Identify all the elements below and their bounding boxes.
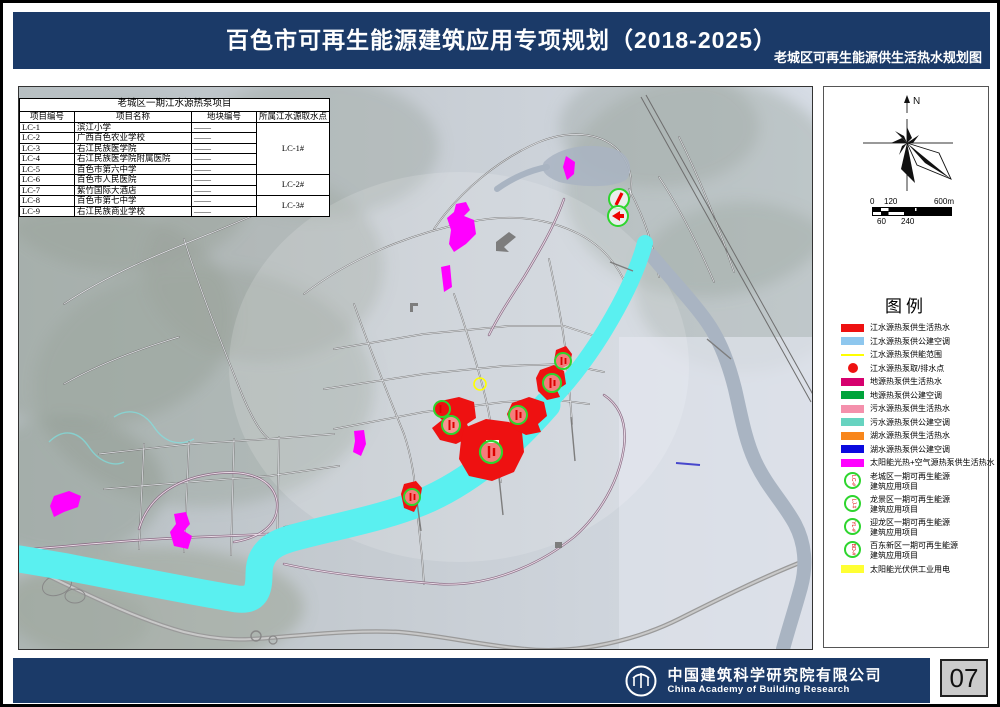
legend-item: 污水源热泵供公建空调 — [841, 416, 986, 430]
legend-swatch — [841, 432, 864, 440]
col-intake-point: 所属江水源取水点 — [257, 112, 330, 123]
scale-label: 60 — [877, 217, 886, 226]
map-area: 老城区一期江水源热泵项目 项目编号 项目名称 地块编号 所属江水源取水点 LC-… — [18, 86, 813, 650]
legend-item-label: 老城区一期可再生能源建筑应用项目 — [870, 471, 950, 493]
legend-item: LC-#老城区一期可再生能源建筑应用项目 — [841, 471, 986, 493]
legend-swatch — [841, 418, 864, 426]
legend-swatch — [841, 337, 864, 345]
cell-project-name: 右江民族医学院附属医院 — [75, 154, 192, 165]
scale-label: 240 — [901, 217, 914, 226]
project-marker-icon: LC-# — [844, 472, 861, 489]
legend-item: 江水源热泵供能范围 — [841, 348, 986, 362]
legend-item: 江水源热泵供生活热水 — [841, 321, 986, 335]
legend-item: 湖水源热泵供生活热水 — [841, 429, 986, 443]
legend-item: 江水源热泵供公建空调 — [841, 335, 986, 349]
cell-project-name: 百色市第七中学 — [75, 196, 192, 207]
cell-project-code: LC-4 — [20, 154, 75, 165]
legend-swatch — [841, 565, 864, 573]
table-title: 老城区一期江水源热泵项目 — [20, 99, 330, 112]
cell-plot-code: —— — [192, 133, 257, 144]
cell-project-code: LC-2 — [20, 133, 75, 144]
table-row: LC-8百色市第七中学——LC-3# — [20, 196, 330, 207]
cell-project-code: LC-6 — [20, 175, 75, 186]
cell-project-code: LC-3 — [20, 143, 75, 154]
legend-swatch — [841, 459, 864, 467]
company-name-cn: 中国建筑科学研究院有限公司 — [667, 667, 882, 684]
table-row: LC-6百色市人民医院——LC-2# — [20, 175, 330, 186]
legend-item-label: 地源热泵供公建空调 — [870, 390, 942, 401]
compass-rose: N — [847, 91, 967, 196]
project-marker-icon: LJ-# — [844, 495, 861, 512]
cell-project-code: LC-1 — [20, 122, 75, 133]
cell-project-name: 右江民族商业学校 — [75, 206, 192, 217]
legend-swatch — [841, 445, 864, 453]
cell-plot-code: —— — [192, 154, 257, 165]
cell-project-code: LC-7 — [20, 185, 75, 196]
legend-item: 太阳能光热+空气源热泵供生活热水 — [841, 456, 986, 470]
scale-bar: 0 120 600m 60 240 — [870, 197, 954, 231]
legend-item: 地源热泵供生活热水 — [841, 375, 986, 389]
cell-plot-code: —— — [192, 122, 257, 133]
cell-project-name: 紫竹国际大酒店 — [75, 185, 192, 196]
cell-intake-point: LC-1# — [257, 122, 330, 175]
legend-item-label: 湖水源热泵供生活热水 — [870, 430, 950, 441]
discharge-point-marker — [608, 206, 628, 226]
cell-project-name: 滨江小学 — [75, 122, 192, 133]
compass-star — [891, 127, 951, 183]
cell-project-name: 右江民族医学院 — [75, 143, 192, 154]
legend-item-label: 太阳能光热+空气源热泵供生活热水 — [870, 457, 995, 468]
cell-plot-code: —— — [192, 185, 257, 196]
legend: 江水源热泵供生活热水江水源热泵供公建空调江水源热泵供能范围江水源热泵取/排水点地… — [841, 321, 986, 576]
project-table: 老城区一期江水源热泵项目 项目编号 项目名称 地块编号 所属江水源取水点 LC-… — [19, 98, 330, 217]
page-number: 07 — [940, 659, 988, 697]
project-marker — [442, 416, 460, 434]
project-marker — [509, 406, 527, 424]
col-project-code: 项目编号 — [20, 112, 75, 123]
legend-item-label: 太阳能光伏供工业用电 — [870, 564, 950, 575]
map-margin-panel: N 0 120 600m 60 240 图例 江水源热泵供生活热水江水源热泵供公… — [823, 86, 989, 648]
col-project-name: 项目名称 — [75, 112, 192, 123]
legend-item-label: 百东新区一期可再生能源建筑应用项目 — [870, 540, 958, 562]
header-bar: 百色市可再生能源建筑应用专项规划（2018-2025） 老城区可再生能源供生活热… — [13, 12, 990, 69]
cell-project-code: LC-8 — [20, 196, 75, 207]
footer-bar: 中国建筑科学研究院有限公司 China Academy of Building … — [13, 658, 930, 703]
legend-item-label: 迎龙区一期可再生能源建筑应用项目 — [870, 517, 950, 539]
cell-project-name: 百色市第六中学 — [75, 164, 192, 175]
legend-item: 湖水源热泵供公建空调 — [841, 443, 986, 457]
legend-swatch — [841, 324, 864, 332]
legend-item-label: 龙景区一期可再生能源建筑应用项目 — [870, 494, 950, 516]
north-label: N — [913, 96, 920, 107]
cell-plot-code: —— — [192, 164, 257, 175]
table-header-row: 项目编号 项目名称 地块编号 所属江水源取水点 — [20, 112, 330, 123]
col-plot-code: 地块编号 — [192, 112, 257, 123]
legend-item: 污水源热泵供生活热水 — [841, 402, 986, 416]
legend-item-label: 江水源热泵供公建空调 — [870, 336, 950, 347]
cell-plot-code: —— — [192, 206, 257, 217]
legend-swatch — [841, 405, 864, 413]
cell-project-name: 百色市人民医院 — [75, 175, 192, 186]
legend-item-label: 污水源热泵供公建空调 — [870, 417, 950, 428]
legend-swatch — [841, 378, 864, 386]
page-subtitle: 老城区可再生能源供生活热水规划图 — [774, 47, 982, 66]
legend-swatch — [841, 391, 864, 399]
legend-item: 江水源热泵取/排水点 — [841, 362, 986, 376]
cell-intake-point: LC-2# — [257, 175, 330, 196]
table-row: LC-1滨江小学——LC-1# — [20, 122, 330, 133]
legend-item-label: 江水源热泵取/排水点 — [870, 363, 944, 374]
project-marker-icon: BD-# — [844, 541, 861, 558]
legend-item-label: 地源热泵供生活热水 — [870, 376, 942, 387]
company-name-en: China Academy of Building Research — [667, 684, 882, 695]
scale-label: 120 — [884, 197, 897, 206]
project-marker-icon: YL-# — [844, 518, 861, 535]
legend-line-symbol — [841, 354, 864, 356]
legend-item: LJ-#龙景区一期可再生能源建筑应用项目 — [841, 494, 986, 516]
scale-label: 600m — [934, 197, 954, 206]
cell-plot-code: —— — [192, 175, 257, 186]
legend-dot-symbol — [841, 363, 864, 373]
legend-item-label: 污水源热泵供生活热水 — [870, 403, 950, 414]
legend-item: YL-#迎龙区一期可再生能源建筑应用项目 — [841, 517, 986, 539]
legend-item: 太阳能光伏供工业用电 — [841, 563, 986, 577]
plan-sheet: 百色市可再生能源建筑应用专项规划（2018-2025） 老城区可再生能源供生活热… — [0, 0, 1000, 707]
cell-plot-code: —— — [192, 143, 257, 154]
legend-item: 地源热泵供公建空调 — [841, 389, 986, 403]
project-marker — [555, 353, 571, 369]
cell-intake-point: LC-3# — [257, 196, 330, 217]
legend-item-label: 江水源热泵供生活热水 — [870, 322, 950, 333]
cell-project-code: LC-5 — [20, 164, 75, 175]
project-marker — [480, 441, 502, 463]
project-marker — [543, 374, 561, 392]
legend-item-label: 江水源热泵供能范围 — [870, 349, 942, 360]
scale-label: 0 — [870, 197, 874, 206]
project-marker — [404, 489, 420, 505]
cell-plot-code: —— — [192, 196, 257, 207]
legend-item-label: 湖水源热泵供公建空调 — [870, 444, 950, 455]
legend-title: 图例 — [824, 292, 988, 317]
cabr-logo-icon — [624, 664, 658, 698]
cell-project-name: 广西百色农业学校 — [75, 133, 192, 144]
footer-text: 中国建筑科学研究院有限公司 China Academy of Building … — [667, 667, 882, 695]
cell-project-code: LC-9 — [20, 206, 75, 217]
legend-item: BD-#百东新区一期可再生能源建筑应用项目 — [841, 540, 986, 562]
